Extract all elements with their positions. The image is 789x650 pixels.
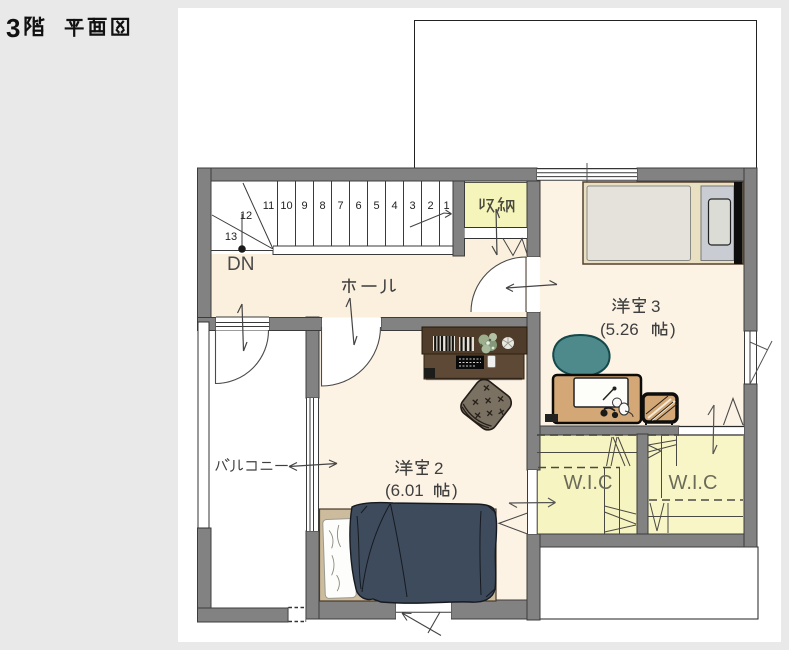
svg-text:2: 2 bbox=[427, 200, 433, 212]
svg-text:2: 2 bbox=[434, 459, 443, 478]
svg-text:3: 3 bbox=[6, 13, 20, 43]
svg-text:6: 6 bbox=[355, 200, 361, 212]
svg-text:DN: DN bbox=[227, 254, 254, 275]
svg-text:5: 5 bbox=[373, 200, 379, 212]
svg-text:3: 3 bbox=[409, 200, 415, 212]
svg-text:W.I.C: W.I.C bbox=[669, 472, 718, 494]
svg-text:W.I.C: W.I.C bbox=[564, 472, 613, 494]
svg-text:11: 11 bbox=[263, 200, 274, 212]
svg-text:1: 1 bbox=[443, 200, 449, 212]
svg-text:): ) bbox=[670, 320, 676, 339]
svg-text:7: 7 bbox=[337, 200, 343, 212]
svg-text:3: 3 bbox=[651, 297, 660, 316]
svg-text:13: 13 bbox=[225, 231, 237, 243]
svg-text:(5.26: (5.26 bbox=[600, 320, 639, 339]
svg-text:8: 8 bbox=[319, 200, 325, 212]
svg-text:(6.01: (6.01 bbox=[385, 481, 424, 500]
svg-text:4: 4 bbox=[391, 200, 397, 212]
svg-text:10: 10 bbox=[280, 200, 292, 212]
svg-text:): ) bbox=[452, 481, 458, 500]
svg-text:12: 12 bbox=[240, 210, 252, 222]
svg-text:9: 9 bbox=[301, 200, 307, 212]
